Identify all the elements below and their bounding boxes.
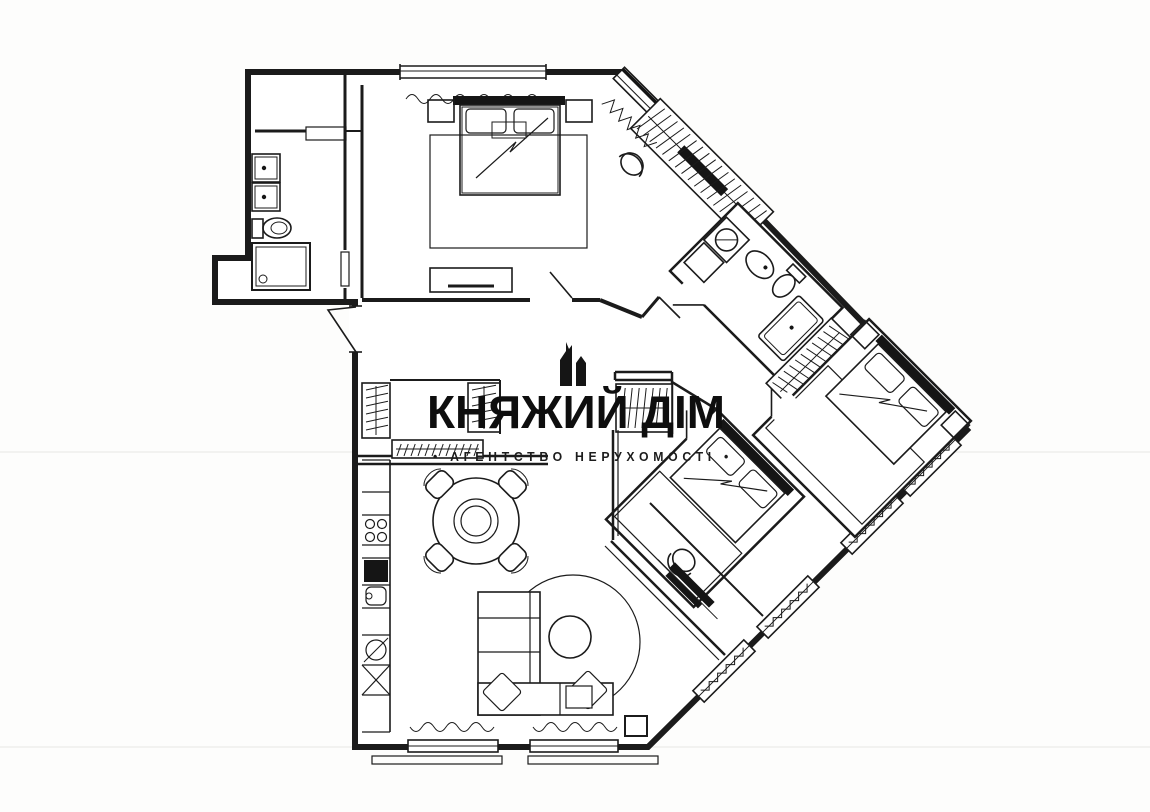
watermark-subtitle: • АГЕНТСТВО НЕРУХОМОСТІ • bbox=[433, 449, 733, 464]
entry-door bbox=[328, 306, 362, 352]
headboard bbox=[453, 96, 565, 105]
coffee-table-icon bbox=[549, 616, 591, 658]
double-bed-icon bbox=[460, 105, 560, 195]
floorplan-page: КНЯЖИЙ ДІМ • АГЕНТСТВО НЕРУХОМОСТІ • bbox=[0, 0, 1150, 812]
watermark-title: КНЯЖИЙ ДІМ bbox=[427, 386, 725, 438]
counter-dark bbox=[364, 560, 388, 582]
floorplan-canvas: КНЯЖИЙ ДІМ • АГЕНТСТВО НЕРУХОМОСТІ • bbox=[0, 0, 1150, 812]
wall-notch bbox=[625, 716, 647, 736]
hall-closet-left bbox=[362, 383, 390, 438]
door-leaf bbox=[341, 252, 349, 286]
cushion bbox=[566, 686, 592, 708]
